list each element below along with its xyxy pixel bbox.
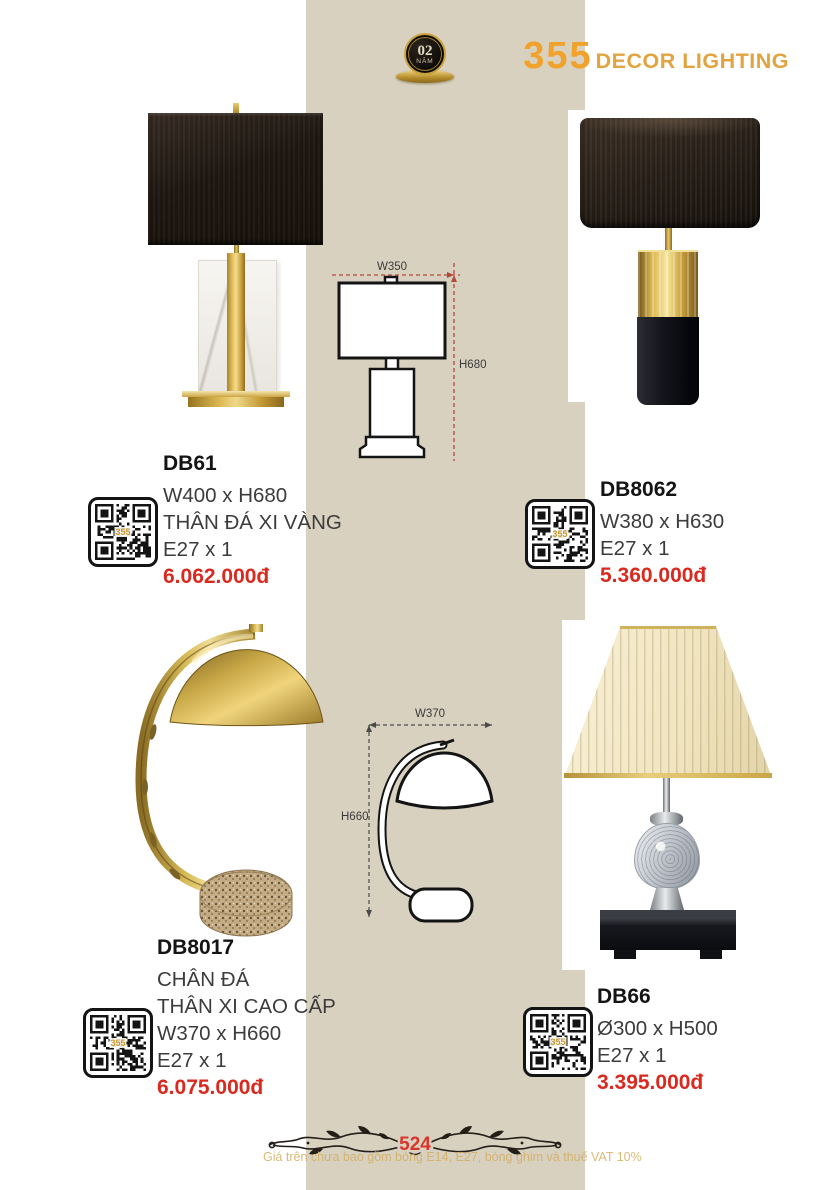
lamp-base-foot bbox=[700, 950, 722, 959]
qr-center-label: 355 bbox=[549, 1037, 566, 1047]
qr-code-db8062: 355 bbox=[525, 499, 595, 569]
badge-years: 02 bbox=[418, 44, 433, 58]
product-info-db61: DB61 W400 x H680 THÂN ĐÁ XI VÀNG E27 x 1… bbox=[163, 452, 342, 589]
lamp-shade-trim bbox=[620, 626, 716, 629]
product-info-db8062: DB8062 W380 x H630 E27 x 1 5.360.000đ bbox=[600, 478, 724, 588]
badge-years-label: NĂM bbox=[416, 58, 433, 65]
product-code: DB61 bbox=[163, 452, 342, 476]
product-price: 6.062.000đ bbox=[163, 565, 342, 589]
brand-name: DECOR LIGHTING bbox=[596, 49, 789, 74]
product-code: DB8017 bbox=[157, 936, 336, 960]
qr-center-label: 355 bbox=[551, 529, 568, 539]
product-photo-db61 bbox=[138, 103, 336, 408]
lamp-gold-cylinder bbox=[638, 250, 698, 319]
product-spec: E27 x 1 bbox=[600, 535, 724, 562]
lamp-stem bbox=[663, 778, 670, 812]
product-spec: THÂN ĐÁ XI VÀNG bbox=[163, 509, 342, 536]
diagram-height-label: H660 bbox=[341, 811, 369, 823]
product-photo-db8062 bbox=[570, 110, 775, 402]
arc-lamp-drawing bbox=[123, 622, 338, 940]
product-info-db66: DB66 Ø300 x H500 E27 x 1 3.395.000đ bbox=[597, 985, 718, 1095]
product-spec: E27 x 1 bbox=[157, 1047, 336, 1074]
catalog-number: 355 bbox=[523, 36, 592, 76]
lamp-shade bbox=[580, 118, 760, 228]
diagram-width-label: W350 bbox=[377, 261, 407, 273]
product-code: DB8062 bbox=[600, 478, 724, 502]
product-code: DB66 bbox=[597, 985, 718, 1009]
lamp-base bbox=[188, 397, 284, 407]
product-spec: W400 x H680 bbox=[163, 482, 342, 509]
product-price: 5.360.000đ bbox=[600, 564, 724, 588]
product-photo-db66 bbox=[562, 620, 774, 968]
diagram-width-label: W370 bbox=[415, 708, 445, 720]
qr-code-db61: 355 bbox=[88, 497, 158, 567]
product-spec: W370 x H660 bbox=[157, 1020, 336, 1047]
qr-code-db8017: 355 bbox=[83, 1008, 153, 1078]
lamp-black-cylinder bbox=[637, 317, 699, 405]
product-spec: THÂN XI CAO CẤP bbox=[157, 993, 336, 1020]
dimension-diagram-top: W350 H680 bbox=[332, 255, 492, 467]
footer-disclaimer: Giá trên chưa bao gồm bóng E14, E27, bón… bbox=[263, 1150, 567, 1164]
product-spec: W380 x H630 bbox=[600, 508, 724, 535]
page-title: 355 DECOR LIGHTING bbox=[523, 36, 789, 76]
lamp-base bbox=[600, 910, 736, 950]
lamp-shade bbox=[148, 113, 323, 245]
lamp-base-foot bbox=[614, 950, 636, 959]
qr-code-db66: 355 bbox=[523, 1007, 593, 1077]
lamp-foot bbox=[650, 888, 684, 910]
lamp-gold-stripe bbox=[227, 253, 245, 393]
product-price: 6.075.000đ bbox=[157, 1076, 336, 1100]
catalog-page: 02 NĂM 355 DECOR LIGHTING W bbox=[0, 0, 839, 1190]
lamp-crystal-urn bbox=[634, 823, 700, 889]
qr-center-label: 355 bbox=[109, 1038, 126, 1048]
product-info-db8017: DB8017 CHÂN ĐÁ THÂN XI CAO CẤP W370 x H6… bbox=[157, 936, 336, 1100]
product-spec: E27 x 1 bbox=[163, 536, 342, 563]
product-spec: E27 x 1 bbox=[597, 1042, 718, 1069]
badge-circle-icon: 02 NĂM bbox=[404, 33, 446, 75]
product-price: 3.395.000đ bbox=[597, 1071, 718, 1095]
diagram-height-label: H680 bbox=[459, 359, 487, 371]
lamp-stem bbox=[665, 228, 672, 250]
qr-center-label: 355 bbox=[114, 527, 131, 537]
anniversary-badge: 02 NĂM bbox=[396, 33, 454, 89]
lamp-pleated-shade bbox=[564, 626, 772, 778]
dimension-diagram-bottom: W370 H660 bbox=[340, 703, 500, 925]
product-photo-db8017 bbox=[123, 622, 338, 940]
product-spec: CHÂN ĐÁ bbox=[157, 966, 336, 993]
product-spec: Ø300 x H500 bbox=[597, 1015, 718, 1042]
